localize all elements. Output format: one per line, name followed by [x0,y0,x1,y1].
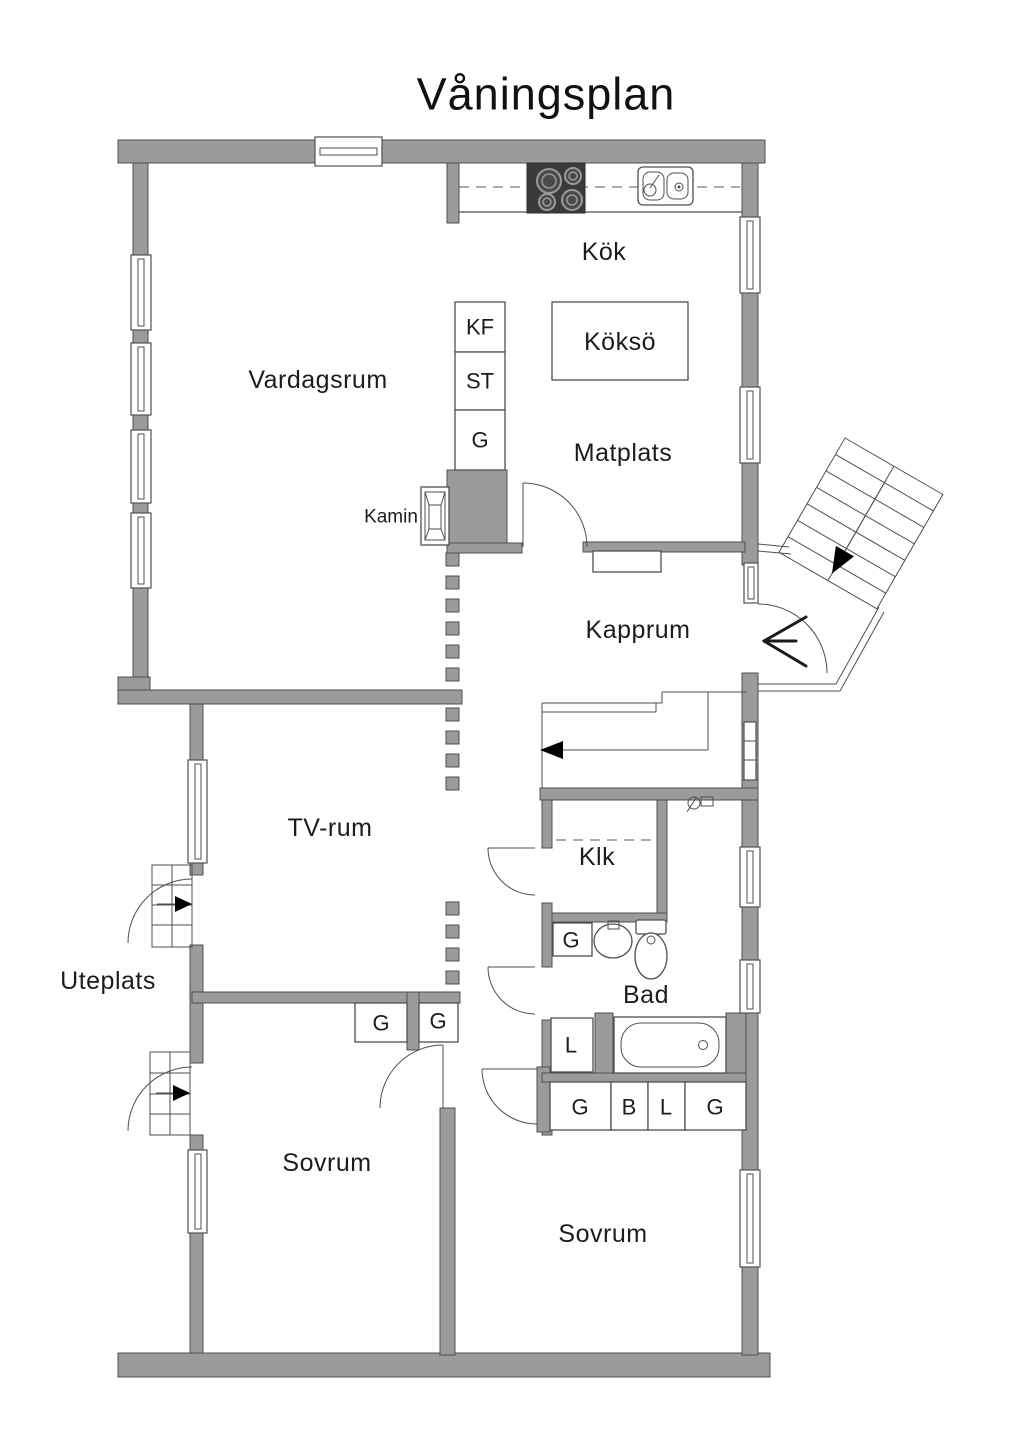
label-kok: Kök [582,238,627,266]
stove [527,163,585,213]
label-row-g2: G [706,1095,723,1120]
bathtub [614,1017,726,1073]
hall-bench [593,551,661,572]
label-klk: Klk [579,843,615,871]
partition-squares [446,553,459,984]
fireplace [421,487,449,545]
door-entrance [758,604,827,673]
label-row-g1: G [571,1095,588,1120]
label-kf: KF [466,315,494,340]
window-bad-1 [740,847,760,907]
wall-vardagsrum-tvrum [118,690,462,704]
label-row-l: L [660,1095,672,1120]
label-kokso: Köksö [584,328,656,356]
wall-closet-stub [407,992,419,1050]
label-vardagsrum: Vardagsrum [248,366,387,394]
window-kok-1 [740,217,760,293]
label-sovrum2: Sovrum [558,1220,647,1248]
wall-tvrum-bottom [192,992,460,1003]
wall-klk-top [540,788,758,800]
burner-icon [562,190,582,210]
wall-right-1 [742,163,758,217]
entrance-landing [758,544,884,691]
label-bad: Bad [623,981,669,1009]
stairs-down-arrow-icon [823,546,854,579]
wall-tvrum-left-1 [190,704,203,760]
door-sovrum2 [482,1069,537,1124]
label-g-hall: G [429,1009,446,1034]
uteplats-steps-lower [150,1052,190,1135]
window-sovrum1 [188,1150,207,1233]
label-matplats: Matplats [574,439,672,467]
window-sovrum2 [740,1170,760,1267]
window-left-2 [131,343,151,415]
window-top [315,137,382,166]
burner-icon [539,194,555,210]
wall-panel-strip [744,722,756,780]
window-tvrum [188,760,207,863]
chimney-block [447,470,507,548]
entrance-stairs [779,438,943,609]
label-tvrum: TV-rum [288,814,373,842]
label-g-bad: G [562,928,579,953]
label-g-sovrum: G [372,1011,389,1036]
door-matplats-kapprum [523,483,587,547]
label-sovrum1: Sovrum [282,1149,371,1177]
wall-top [118,140,765,163]
toilet [635,920,667,979]
wall-kok-stub [447,163,459,223]
door-klk [488,848,535,895]
washbasin [594,921,632,958]
wall-cabinet-row-top [542,1073,746,1082]
page-title: Våningsplan [417,69,676,120]
steps-arrow-icon [175,896,192,912]
wall-right-6 [742,907,758,960]
window-left-4 [131,513,151,588]
wall-bottom [118,1353,770,1377]
wall-klk-right [657,800,667,922]
labels: Vardagsrum Kök Köksö Matplats Kamin Kapp… [60,238,723,1248]
window-kok-2 [740,387,760,463]
door-tvrum-uteplats [128,879,192,943]
wall-right-8 [742,1267,758,1355]
kitchen-sink [638,167,693,205]
label-g-pantry: G [471,428,488,453]
label-kamin: Kamin [364,507,418,528]
wall-sovrum-divider [440,1108,455,1355]
window-entry-sidelight [744,563,758,603]
door-bad [488,967,535,1014]
wall-vestibule-2 [542,903,552,967]
door-sovrum1-uteplats [128,1067,192,1131]
wall-right-2 [742,293,758,387]
floorplan-page: Våningsplan [0,0,1024,1448]
chimney-strip [447,543,522,553]
steps-arrow-icon [173,1085,190,1101]
window-left-3 [131,430,151,503]
uteplats-steps-upper [152,865,192,947]
wall-left-upper [133,163,148,690]
burner-icon [537,169,561,193]
label-uteplats: Uteplats [60,967,156,995]
interior-stairs [540,692,747,788]
wall-bath-stub-1 [595,1013,613,1073]
label-row-b: B [622,1095,637,1120]
label-l-bad: L [565,1033,577,1058]
floorplan-drawing: Våningsplan [0,0,1024,1448]
wall-sovrum1-left-2 [190,1233,203,1355]
label-kapprum: Kapprum [586,616,691,644]
wall-tvrum-left-3 [190,945,203,1063]
wall-bath-stub-2 [726,1013,746,1073]
door-sovrum1 [380,1045,443,1108]
burner-icon [565,168,581,184]
wall-vestibule-1 [542,800,552,848]
window-bad-2 [740,960,760,1013]
label-st: ST [466,369,494,394]
window-left-1 [131,255,151,330]
wall-sovrum1-left-1 [190,1135,203,1150]
stairs-down-arrow-icon [540,741,563,759]
